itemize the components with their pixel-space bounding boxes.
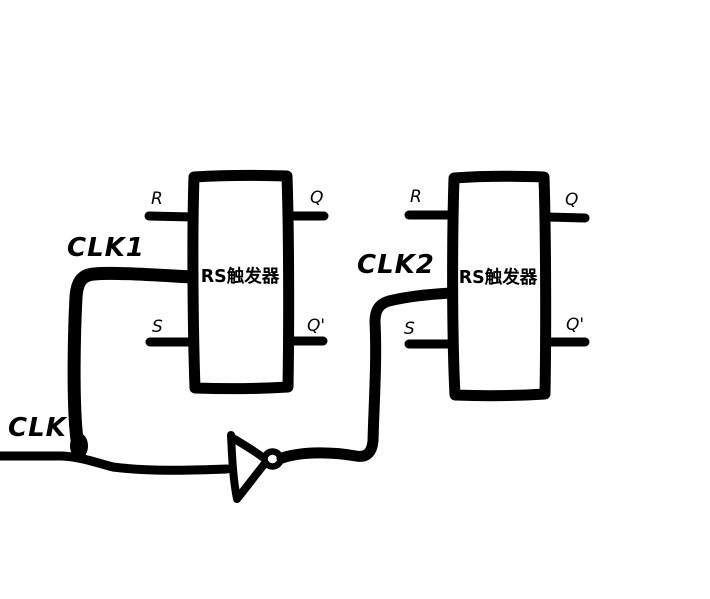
flipflop2-pin-r-label: R [410, 187, 422, 207]
clk1-label: CLK1 [67, 233, 145, 263]
flipflop1-pin-r [149, 216, 193, 217]
not-gate-icon [231, 435, 281, 499]
clk-label: CLK [8, 413, 68, 443]
flipflop1-pin-s-label: S [152, 317, 163, 337]
flipflop2-label: RS触发器 [459, 267, 538, 288]
circuit-diagram: RS触发器 R S Q Q' RS触发器 R S Q Q' C [0, 0, 710, 599]
not-gate-triangle [231, 435, 266, 499]
flipflop2-pin-q-label: Q [565, 190, 578, 210]
clk1-wire [74, 273, 192, 451]
diagram-svg: RS触发器 R S Q Q' RS触发器 R S Q Q' C [0, 0, 710, 599]
flipflop2-pin-q-bar-label: Q' [566, 315, 584, 335]
flipflop2-pin-s-label: S [404, 319, 415, 339]
flipflop1-label: RS触发器 [201, 266, 280, 287]
flipflop1-pin-q-label: Q [310, 188, 323, 208]
flipflop2-pin-q [547, 217, 585, 218]
clk-line [0, 456, 227, 470]
clk2-label: CLK2 [357, 250, 435, 280]
flipflop1-pin-r-label: R [151, 189, 163, 209]
flipflop1-pin-q-bar-label: Q' [307, 316, 325, 336]
